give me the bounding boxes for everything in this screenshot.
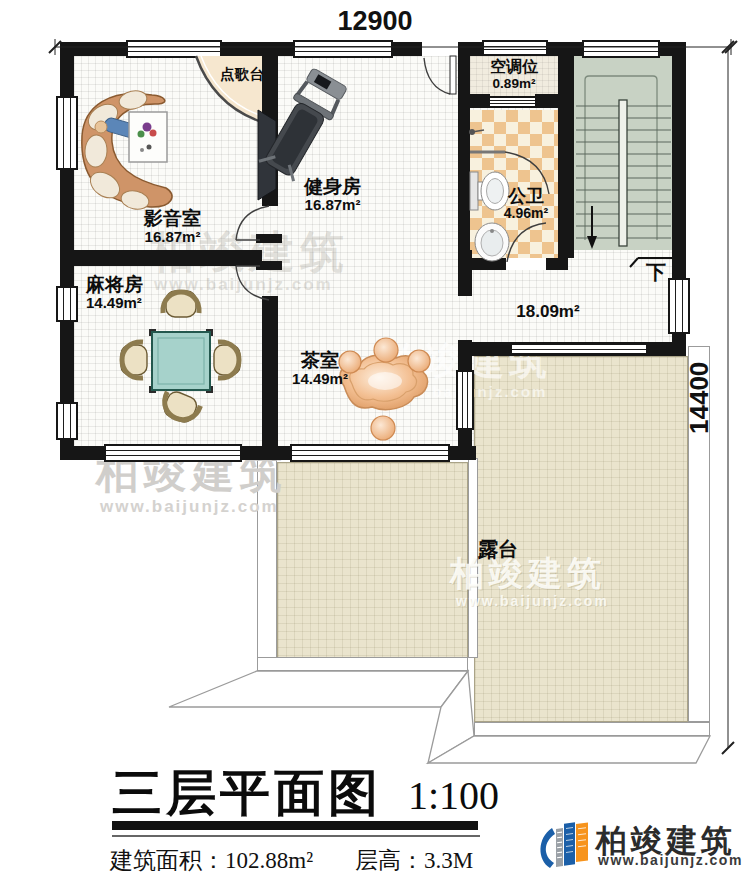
terrace-floor-left [277, 462, 468, 658]
room-area: 0.89m² [478, 76, 550, 91]
dimension-width-label: 12900 [300, 6, 450, 37]
room-label-mahjong: 麻将房 14.49m² [86, 274, 181, 312]
room-name: 健身房 [280, 176, 385, 197]
door-jamb-lower [256, 261, 282, 270]
window-media-left [56, 96, 78, 170]
window-hall-east [668, 278, 690, 334]
wall-media-mahjong [74, 250, 262, 266]
watermark-url: www.baijunjz.com [100, 498, 279, 515]
floor-plan-canvas: 柏竣建筑 www.baijunjz.com 柏竣建筑 www.baijunjz.… [0, 0, 750, 883]
window-mahjong-left-1 [56, 286, 78, 322]
window-media-top [126, 40, 222, 58]
room-area: 16.87m² [280, 197, 385, 214]
hall-area-label: 18.09m² [506, 302, 590, 321]
room-name: 空调位 [478, 58, 550, 76]
door-jamb-upper [256, 234, 282, 243]
room-label-tea: 茶室 14.49m² [284, 350, 356, 388]
karaoke-label: 点歌台 [212, 66, 272, 82]
area-label: 建筑面积： [110, 848, 225, 873]
window-stairs-top [582, 40, 660, 58]
wall-mahjong-tea [262, 296, 278, 446]
room-name: 茶室 [284, 350, 356, 371]
wall-ac-divider-left [470, 94, 490, 108]
door-opening-bath [506, 258, 546, 270]
wall-bath-west [458, 56, 470, 258]
window-gym-top [293, 40, 393, 58]
door-opening-top [422, 42, 458, 56]
company-logo-icon [534, 810, 594, 874]
room-area: 14.49m² [284, 371, 356, 388]
room-label-media: 影音室 16.87m² [120, 208, 225, 246]
scale-label: 1:100 [408, 772, 499, 819]
window-ac-top [482, 40, 548, 56]
company-logo-url: www.baijunjz.com [598, 852, 743, 868]
window-ac-bath [488, 96, 537, 108]
dimension-height-label: 14400 [684, 348, 715, 434]
page-title: 三层平面图 [112, 760, 382, 827]
floor-height-value: 3.3M [424, 848, 473, 873]
window-mahjong-left-2 [56, 402, 78, 440]
watermark-url: www.baijunjz.com [456, 594, 609, 608]
room-name: 麻将房 [86, 274, 181, 295]
floor-height-label: 层高： [355, 848, 424, 873]
room-name: 公卫 [496, 186, 556, 206]
bathroom-floor [470, 110, 558, 258]
terrace-label: 露台 [472, 538, 524, 560]
stairs-down-label: 下 [642, 261, 670, 283]
title-rule-thick [112, 821, 478, 830]
build-info-line: 建筑面积：102.88m²层高：3.3M [110, 845, 500, 876]
room-area: 4.96m² [496, 206, 556, 222]
window-mahjong-bottom [104, 444, 242, 462]
room-name: 影音室 [120, 208, 225, 229]
stairwell-floor [574, 56, 672, 250]
room-area: 16.87m² [120, 229, 225, 246]
room-label-gym: 健身房 16.87m² [280, 176, 385, 214]
room-label-ac: 空调位 0.89m² [478, 58, 550, 91]
watermark-text: 柏竣建筑 [450, 556, 606, 590]
room-label-bath: 公卫 4.96m² [496, 186, 556, 222]
wall-bath-east [558, 56, 574, 258]
parapet-bottom-right [474, 722, 710, 736]
room-area: 14.49m² [86, 295, 181, 312]
wall-ac-divider-right [535, 94, 558, 108]
window-tea-bottom [290, 444, 450, 462]
area-value: 102.88m² [225, 848, 313, 873]
title-rule-thin [112, 835, 480, 837]
sliding-door-terrace [510, 343, 648, 355]
window-tea-east [456, 370, 474, 430]
parapet-bottom-left [257, 657, 468, 671]
